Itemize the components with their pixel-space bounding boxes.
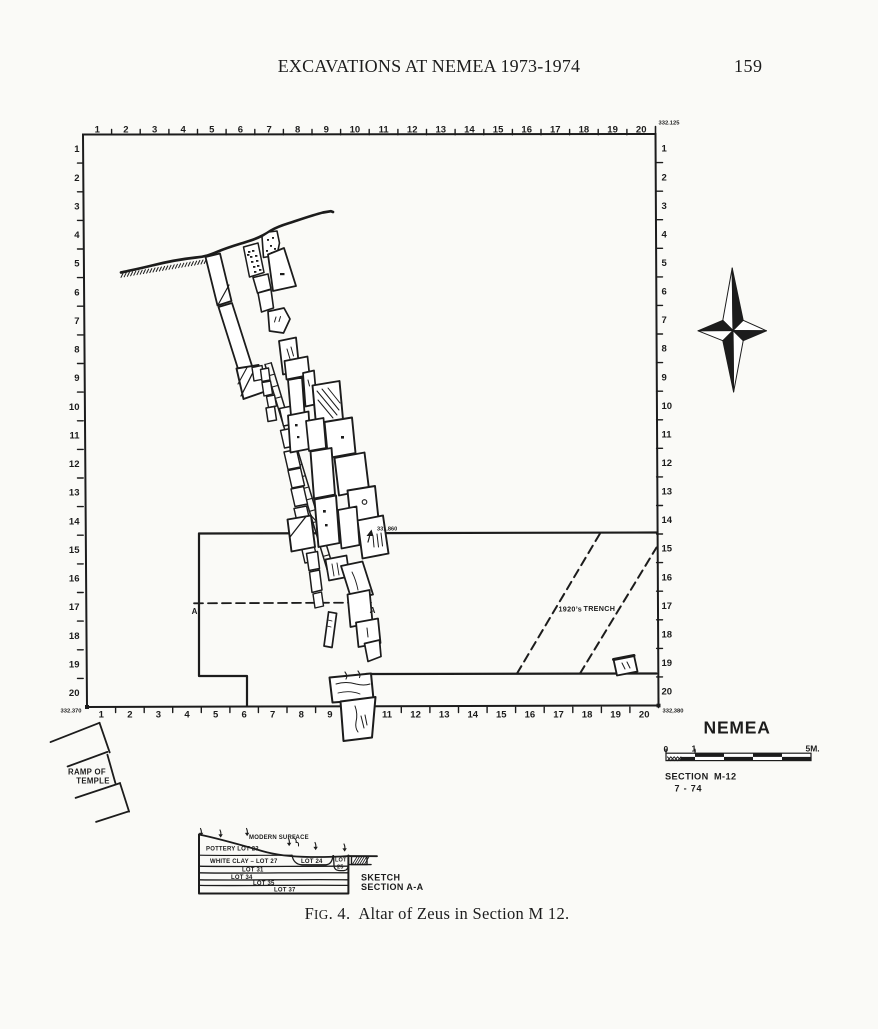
svg-text:6: 6 [238, 125, 243, 136]
svg-text:13: 13 [69, 488, 80, 499]
svg-text:NEMEA: NEMEA [704, 718, 771, 738]
svg-text:4: 4 [184, 710, 190, 721]
svg-text:14: 14 [464, 125, 475, 136]
svg-text:11: 11 [69, 431, 80, 442]
svg-text:LOT 31: LOT 31 [242, 867, 264, 873]
svg-text:13: 13 [436, 125, 447, 136]
svg-text:331.860: 331.860 [377, 527, 397, 533]
svg-text:9: 9 [662, 372, 667, 383]
svg-text:18: 18 [69, 631, 80, 642]
svg-text:10: 10 [69, 402, 80, 413]
svg-text:17: 17 [662, 601, 673, 612]
svg-text:17: 17 [553, 710, 564, 721]
svg-text:19: 19 [607, 125, 618, 136]
svg-text:WHITE CLAY – LOT 27: WHITE CLAY – LOT 27 [210, 859, 278, 865]
svg-text:3: 3 [662, 201, 667, 212]
svg-text:15: 15 [662, 544, 673, 555]
svg-text:4: 4 [181, 125, 187, 136]
svg-text:0: 0 [664, 744, 669, 754]
svg-text:POTTERY LOT 23: POTTERY LOT 23 [206, 847, 259, 853]
svg-text:14: 14 [69, 516, 80, 527]
svg-text:M-12: M-12 [714, 772, 737, 782]
svg-text:4: 4 [662, 229, 668, 240]
svg-text:12: 12 [410, 710, 421, 721]
svg-text:FIG. 4. Altar of Zeus in Sect: FIG. 4. Altar of Zeus in Section M 12. [305, 904, 570, 923]
svg-text:8: 8 [662, 344, 667, 355]
svg-text:A: A [192, 607, 198, 616]
svg-text:7 - 74: 7 - 74 [675, 784, 703, 794]
svg-text:17: 17 [550, 125, 561, 136]
svg-text:TEMPLE: TEMPLE [76, 777, 109, 786]
svg-text:332,380: 332,380 [663, 709, 684, 715]
svg-text:12: 12 [662, 458, 673, 469]
svg-text:1: 1 [95, 125, 101, 136]
svg-text:332.125: 332.125 [659, 121, 681, 127]
svg-text:LOT 34: LOT 34 [231, 875, 253, 881]
svg-text:2: 2 [123, 125, 128, 136]
svg-text:16: 16 [662, 572, 673, 583]
svg-text:7: 7 [74, 316, 79, 327]
svg-text:20: 20 [636, 125, 647, 136]
svg-text:SKETCH: SKETCH [361, 873, 400, 883]
svg-text:3: 3 [156, 710, 161, 721]
svg-text:159: 159 [734, 56, 763, 76]
svg-text:19: 19 [610, 710, 621, 721]
svg-text:20: 20 [662, 687, 673, 698]
svg-text:8: 8 [299, 710, 304, 721]
svg-text:1: 1 [74, 144, 80, 155]
svg-text:11: 11 [382, 710, 393, 721]
svg-text:10: 10 [662, 401, 673, 412]
svg-text:15: 15 [493, 125, 504, 136]
svg-text:12: 12 [69, 459, 80, 470]
svg-text:18: 18 [662, 630, 673, 641]
svg-text:2: 2 [127, 710, 132, 721]
svg-text:16: 16 [69, 574, 80, 585]
svg-text:11: 11 [662, 429, 673, 440]
svg-text:MODERN SURFACE: MODERN SURFACE [249, 835, 309, 841]
svg-text:LOT 35: LOT 35 [253, 881, 275, 887]
svg-text:14: 14 [662, 515, 673, 526]
svg-text:11: 11 [379, 125, 390, 136]
svg-text:5M.: 5M. [806, 744, 820, 754]
svg-text:13: 13 [439, 710, 450, 721]
svg-text:5: 5 [209, 125, 215, 136]
svg-text:RAMP OF: RAMP OF [68, 768, 106, 777]
svg-text:1920’s: 1920’s [559, 605, 583, 614]
svg-text:8: 8 [74, 345, 79, 356]
svg-text:18: 18 [582, 710, 593, 721]
svg-text:16: 16 [525, 710, 536, 721]
svg-text:8: 8 [295, 125, 300, 136]
svg-text:9: 9 [74, 373, 79, 384]
svg-text:2: 2 [74, 173, 79, 184]
svg-text:1: 1 [99, 710, 105, 721]
svg-text:SECTION: SECTION [665, 772, 709, 782]
svg-text:SECTION A-A: SECTION A-A [361, 882, 424, 892]
svg-text:5: 5 [74, 259, 80, 270]
svg-text:A: A [370, 606, 376, 615]
svg-text:3: 3 [74, 202, 79, 213]
svg-text:20: 20 [69, 688, 80, 699]
svg-text:17: 17 [69, 602, 80, 613]
svg-text:7: 7 [270, 710, 275, 721]
svg-text:7: 7 [662, 315, 667, 326]
svg-text:2: 2 [662, 172, 667, 183]
svg-text:25: 25 [337, 865, 343, 871]
svg-text:4: 4 [74, 230, 80, 241]
svg-text:18: 18 [579, 125, 590, 136]
svg-text:19: 19 [69, 660, 80, 671]
svg-text:16: 16 [521, 125, 532, 136]
svg-text:20: 20 [639, 710, 650, 721]
svg-text:9: 9 [327, 710, 332, 721]
svg-text:3: 3 [152, 125, 157, 136]
svg-text:12: 12 [407, 125, 418, 136]
svg-text:14: 14 [468, 710, 479, 721]
svg-text:10: 10 [350, 125, 361, 136]
svg-text:1: 1 [692, 744, 697, 754]
svg-text:LOT 24: LOT 24 [301, 859, 323, 865]
svg-text:LOT: LOT [335, 858, 347, 864]
svg-text:LOT 37: LOT 37 [274, 888, 296, 894]
svg-text:9: 9 [324, 125, 329, 136]
svg-text:15: 15 [69, 545, 80, 556]
svg-text:13: 13 [662, 487, 673, 498]
svg-text:7: 7 [266, 125, 271, 136]
svg-text:1: 1 [662, 144, 668, 155]
svg-text:5: 5 [213, 710, 219, 721]
svg-text:EXCAVATIONS AT NEMEA 1973-1974: EXCAVATIONS AT NEMEA 1973-1974 [278, 56, 581, 76]
svg-text:TRENCH: TRENCH [584, 604, 616, 613]
svg-text:5: 5 [662, 258, 668, 269]
svg-text:6: 6 [74, 287, 79, 298]
svg-text:6: 6 [242, 710, 247, 721]
svg-text:6: 6 [662, 287, 667, 298]
svg-text:332.370: 332.370 [61, 709, 82, 715]
svg-text:19: 19 [662, 658, 673, 669]
svg-text:15: 15 [496, 710, 507, 721]
